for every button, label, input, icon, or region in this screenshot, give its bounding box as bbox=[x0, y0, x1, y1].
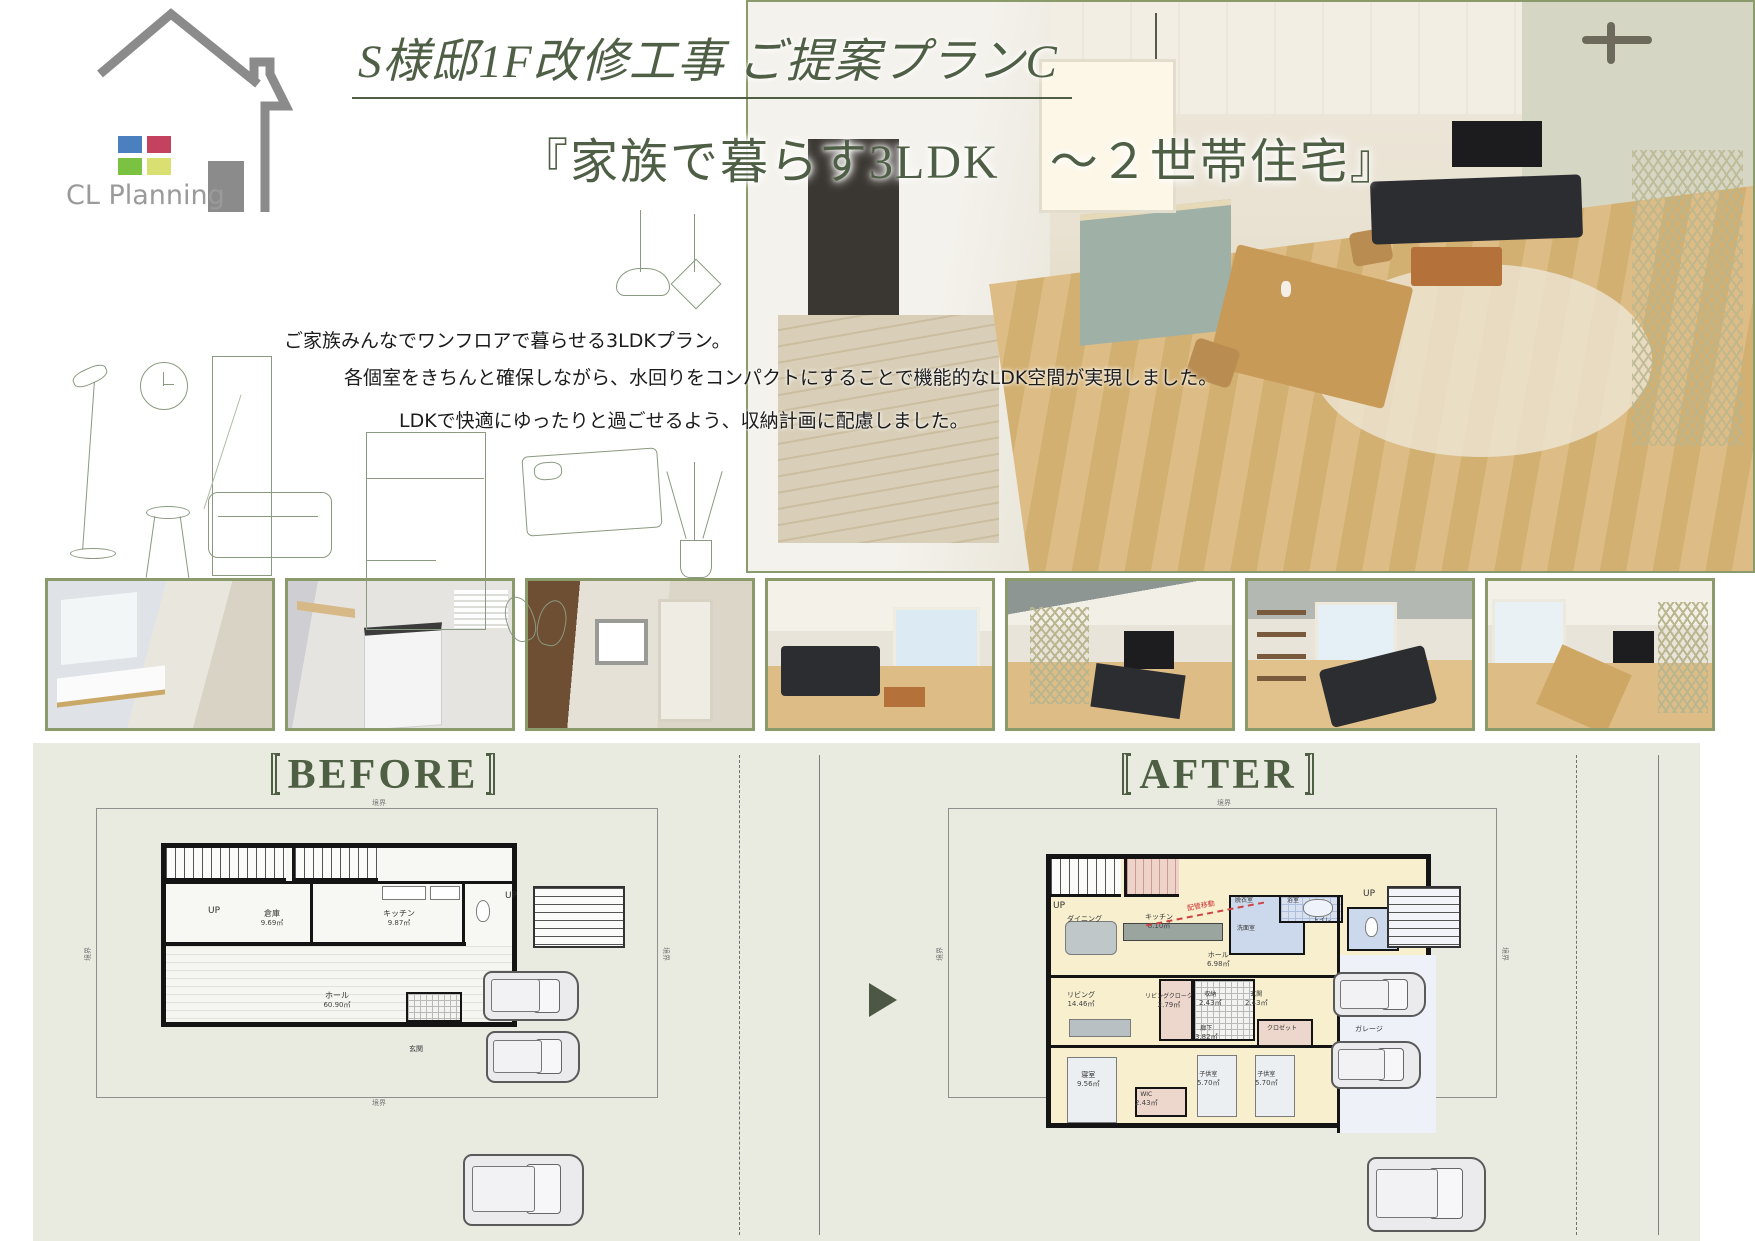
proposal-page: CL Planning S様邸1F改修工事 ご提案プランC 『家族で暮らす3LD… bbox=[0, 0, 1755, 1241]
boundary-label: 境界 bbox=[1217, 798, 1231, 808]
car bbox=[1331, 1041, 1421, 1089]
double-bracket-close bbox=[486, 753, 495, 795]
outdoor-stair bbox=[533, 886, 625, 948]
sofa-dark bbox=[1370, 175, 1583, 245]
toilet bbox=[476, 900, 490, 922]
plant-pot-sketch bbox=[680, 540, 712, 578]
description-line-1: ご家族みんなでワンフロアで暮らせる3LDKプラン。 bbox=[284, 326, 731, 353]
room-label-bedroom: 寝室 9.56㎡ bbox=[1077, 1071, 1100, 1089]
road-edge-line bbox=[1658, 755, 1659, 1235]
tv bbox=[1124, 631, 1173, 669]
plant-leaf bbox=[694, 462, 696, 540]
page-title: S様邸1F改修工事 ご提案プランC bbox=[352, 22, 1072, 99]
sofa bbox=[1069, 1019, 1131, 1037]
pendant-lamp-sketch bbox=[640, 210, 642, 272]
room-label-storage: 収納 2.43㎡ bbox=[1199, 991, 1222, 1007]
stove bbox=[430, 886, 460, 900]
thumbnail-dining-living bbox=[1245, 578, 1475, 731]
washer bbox=[364, 622, 442, 731]
hammock bbox=[1658, 602, 1707, 714]
room-label-up: UP bbox=[1053, 901, 1065, 912]
rack-shelf-line bbox=[366, 560, 436, 562]
pendant-lamp-sketch-shade bbox=[616, 268, 670, 296]
room-label-hallway: 廊下 3.82㎡ bbox=[1195, 1025, 1218, 1041]
wall bbox=[310, 884, 313, 942]
room-label-garage: ガレージ bbox=[1355, 1025, 1383, 1034]
description-line-2: 各個室をきちんと確保しながら、水回りをコンパクトにすることで機能的なLDK空間が… bbox=[344, 363, 1217, 390]
stool-leg bbox=[146, 516, 157, 578]
room-label-up: UP bbox=[1363, 889, 1375, 900]
wall bbox=[166, 881, 512, 884]
company-name: CL Planning bbox=[66, 180, 225, 211]
bathtub bbox=[1303, 899, 1333, 917]
boundary-label: 境界 bbox=[83, 947, 93, 961]
before-after-section: BEFORE AFTER 境界 境界 境界 境界 bbox=[33, 743, 1700, 1241]
table bbox=[884, 687, 924, 708]
plant-leaf bbox=[666, 471, 687, 539]
tv-panel bbox=[1452, 121, 1542, 167]
double-bracket-close bbox=[1305, 753, 1314, 795]
room-label-entrance: 玄関 2.43㎡ bbox=[1245, 991, 1268, 1007]
boundary-label: 境界 bbox=[935, 947, 945, 961]
boundary-label: 境界 bbox=[372, 798, 386, 808]
plant-leaf bbox=[702, 471, 723, 539]
vase bbox=[1281, 281, 1291, 297]
door-frame bbox=[658, 599, 713, 723]
room-label-up: UP bbox=[208, 906, 220, 917]
stair-area bbox=[1051, 859, 1121, 897]
kitchen-counter bbox=[1123, 923, 1223, 941]
road-edge-line bbox=[819, 755, 820, 1235]
room-label-closet: クロゼット bbox=[1267, 1025, 1297, 1033]
car bbox=[1367, 1157, 1486, 1232]
hammock-net bbox=[1632, 150, 1743, 446]
logo-square-blue bbox=[118, 136, 142, 153]
room-label-up: UP bbox=[505, 891, 517, 902]
road-centerline bbox=[739, 755, 740, 1235]
double-bracket-open bbox=[1122, 753, 1131, 795]
after-label: AFTER bbox=[1139, 752, 1296, 798]
window bbox=[893, 607, 980, 672]
floor-lamp-head bbox=[70, 361, 109, 390]
road-centerline bbox=[1576, 755, 1577, 1235]
clock-hand bbox=[164, 384, 174, 386]
room-label-hall: ホール 60.90㎡ bbox=[297, 991, 377, 1010]
stool-sketch-top bbox=[146, 506, 190, 519]
room-label-wic: WIC 2.43㎡ bbox=[1135, 1091, 1158, 1107]
bed bbox=[1067, 1057, 1117, 1123]
room-label-living-cloak: リビングクローク 2.79㎡ bbox=[1145, 993, 1193, 1009]
art-frame bbox=[595, 619, 648, 665]
room-label-living: リビング 14.46㎡ bbox=[1067, 991, 1095, 1009]
hammock bbox=[1030, 607, 1088, 704]
mirror bbox=[61, 592, 137, 665]
rack-shelf-line bbox=[366, 478, 484, 480]
thumbnail-powder-room bbox=[45, 578, 275, 731]
logo-square-green bbox=[118, 158, 142, 175]
tv bbox=[1613, 631, 1653, 663]
before-to-after-arrow bbox=[869, 983, 897, 1017]
before-heading: BEFORE bbox=[233, 746, 533, 799]
room-label-hall: ホール 6.98㎡ bbox=[1207, 951, 1230, 969]
sofa bbox=[781, 646, 880, 696]
double-bracket-open bbox=[271, 753, 280, 795]
boundary-label: 境界 bbox=[372, 1098, 386, 1108]
car bbox=[486, 1031, 580, 1083]
sofa-sketch-cushion bbox=[218, 516, 318, 518]
room-label-storage: 倉庫 9.69㎡ bbox=[237, 909, 307, 928]
before-label: BEFORE bbox=[288, 752, 479, 798]
wall-clock-sketch bbox=[140, 362, 188, 410]
boundary-label: 境界 bbox=[661, 947, 671, 961]
stair-area bbox=[292, 848, 378, 881]
closet-pink bbox=[1257, 1019, 1313, 1047]
shelf bbox=[1257, 610, 1306, 686]
wall bbox=[1051, 975, 1341, 978]
room-label-dining: ダイニング bbox=[1067, 915, 1102, 924]
bed-sketch bbox=[521, 447, 662, 536]
room-label-senmen: 洗面室 bbox=[1237, 925, 1255, 933]
entrance-area bbox=[406, 992, 462, 1022]
company-logo: CL Planning bbox=[58, 4, 324, 214]
ceiling-fan-blade bbox=[1607, 22, 1615, 64]
outdoor-stair bbox=[1387, 886, 1461, 948]
thumbnail-living-hammock bbox=[1005, 578, 1235, 731]
ceiling-fan bbox=[1582, 36, 1652, 44]
floor-lamp-base bbox=[70, 548, 116, 559]
coffee-table bbox=[1411, 247, 1501, 287]
thumbnail-living-room bbox=[765, 578, 995, 731]
room-label-bath: 浴室 bbox=[1287, 897, 1299, 905]
sofa-sketch bbox=[208, 492, 332, 558]
room-label-toilet: トイレ bbox=[1313, 917, 1331, 925]
boundary-label: 境界 bbox=[1500, 947, 1510, 961]
geo-pendant-sketch-body bbox=[671, 259, 722, 310]
kitchen-sink bbox=[382, 886, 426, 900]
dining-table bbox=[1065, 921, 1117, 955]
stair-area bbox=[166, 848, 286, 881]
logo-square-yellow bbox=[147, 158, 171, 175]
before-floor-plan: 境界 境界 境界 境界 bbox=[96, 808, 658, 1098]
logo-square-red bbox=[147, 136, 171, 153]
car bbox=[483, 971, 579, 1021]
car bbox=[463, 1154, 584, 1226]
room-label-kitchen: キッチン 9.87㎡ bbox=[359, 909, 439, 928]
description-line-3: LDKで快適にゆったりと過ごせるよう、収納計画に配慮しました。 bbox=[399, 406, 969, 433]
room-label-kids2: 子供室 5.70㎡ bbox=[1255, 1071, 1278, 1087]
stair-area-pink bbox=[1124, 859, 1179, 897]
clothes-rack-sketch bbox=[366, 432, 486, 630]
thumbnail-kitchen-dining bbox=[1485, 578, 1715, 731]
kitchen-island bbox=[1080, 199, 1231, 346]
stool-leg bbox=[180, 516, 191, 578]
car bbox=[1333, 972, 1426, 1017]
room-label-kids1: 子供室 5.70㎡ bbox=[1197, 1071, 1220, 1087]
wall bbox=[462, 884, 465, 946]
after-heading: AFTER bbox=[1068, 746, 1368, 799]
after-floor-plan: 境界 境界 境界 bbox=[948, 808, 1497, 1098]
cloak-area-pink bbox=[1159, 979, 1193, 1041]
room-label-entrance: 玄関 bbox=[409, 1045, 423, 1054]
floor-lamp-sketch bbox=[82, 382, 96, 550]
toilet bbox=[1365, 917, 1378, 937]
page-subtitle: 『家族で暮らす3LDK ～２世帯住宅』 bbox=[520, 122, 1400, 192]
